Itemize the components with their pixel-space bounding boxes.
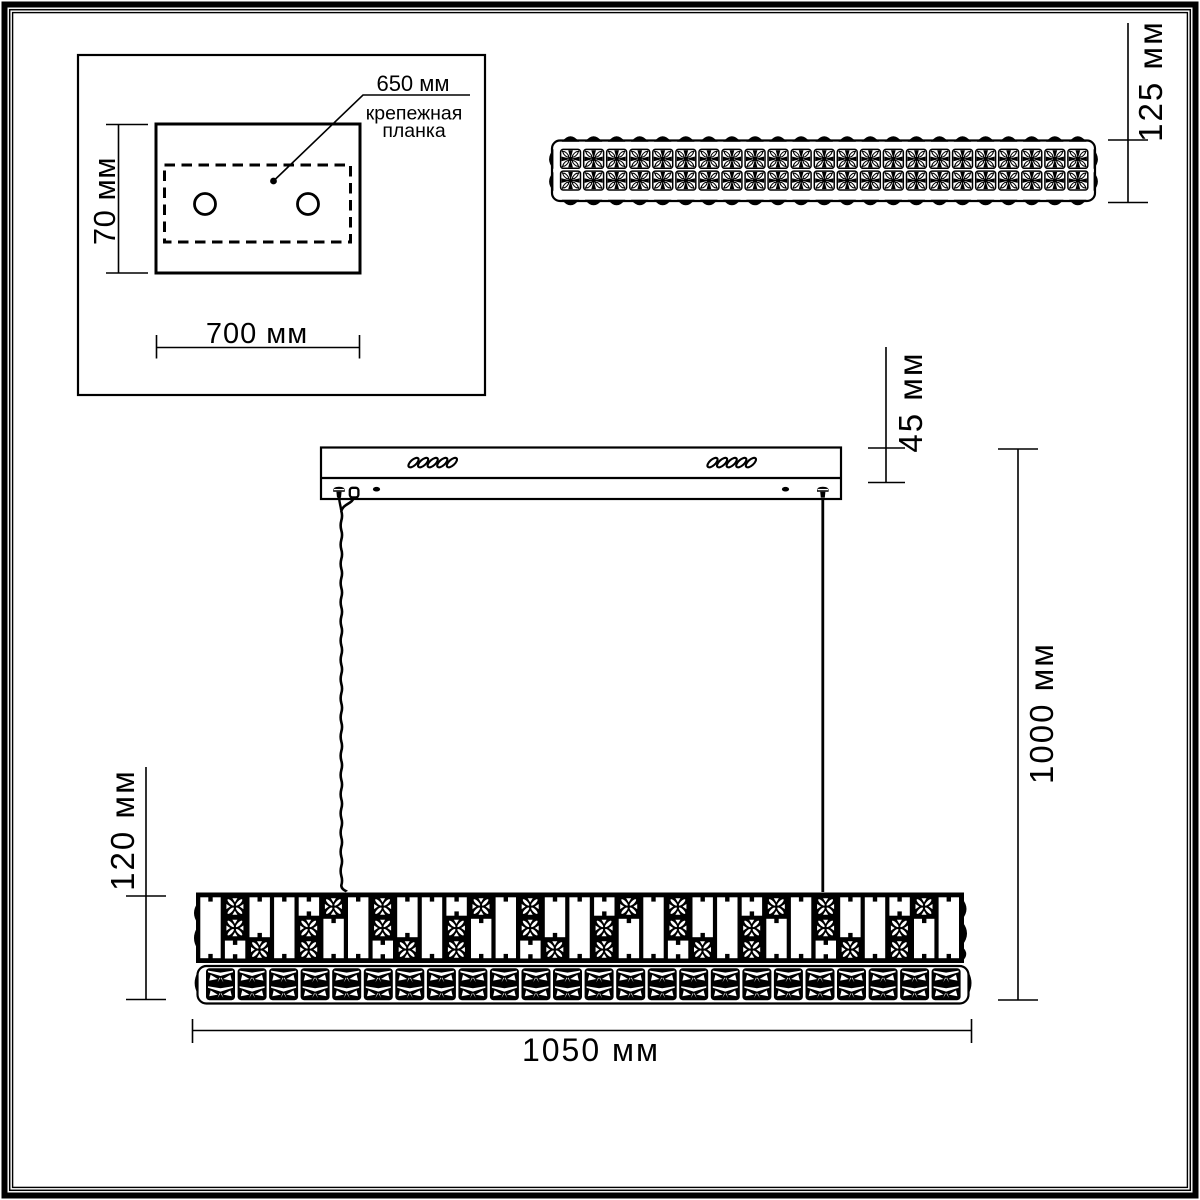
svg-text:45 мм: 45 мм — [892, 351, 929, 452]
svg-text:120 мм: 120 мм — [104, 769, 141, 891]
svg-text:650 мм: 650 мм — [376, 71, 449, 96]
svg-text:1000 мм: 1000 мм — [1023, 642, 1060, 784]
svg-text:70 мм: 70 мм — [87, 157, 122, 245]
svg-text:125 мм: 125 мм — [1132, 20, 1169, 142]
svg-text:1050 мм: 1050 мм — [522, 1032, 660, 1068]
svg-text:планка: планка — [382, 120, 446, 142]
svg-text:700 мм: 700 мм — [206, 318, 308, 350]
